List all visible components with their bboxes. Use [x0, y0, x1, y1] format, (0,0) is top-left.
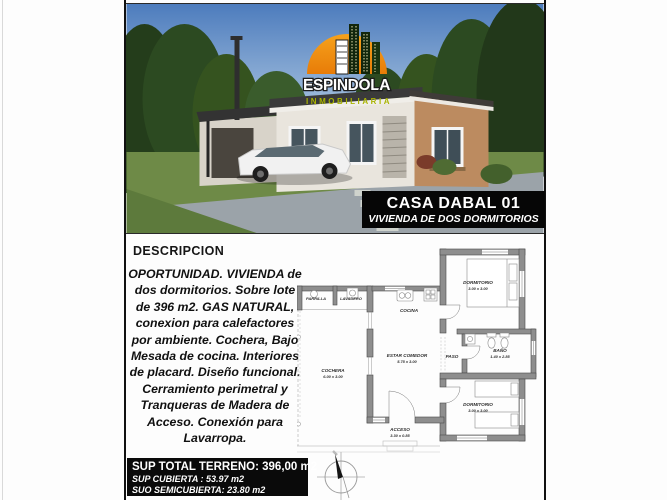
room-label-dormitorio1: DORMITORIO	[463, 280, 493, 285]
floor-plan-drawing: PARRILLA LAVADERO COCINA DORMITORIO 3.00…	[297, 241, 549, 459]
slat-panel	[383, 116, 407, 178]
flyer-page: ESPINDOLA INMOBILIARIA CASA DABAL 01 VIV…	[0, 0, 667, 500]
title-banner: CASA DABAL 01 VIVIENDA DE DOS DORMITORIO…	[362, 191, 545, 228]
front-window-2	[347, 121, 377, 165]
property-title: CASA DABAL 01	[362, 195, 545, 213]
north-arrow	[311, 446, 371, 500]
green-bush	[433, 159, 457, 175]
kitchen-sink-icon	[397, 290, 413, 301]
logo-name-text: ESPINDOLA	[303, 77, 391, 94]
room-label-parrilla: PARRILLA	[306, 296, 326, 301]
logo-buildings-icon	[336, 24, 380, 74]
room-label-cochera: COCHERA	[321, 368, 344, 373]
summary-semicubierta: SUO SEMICUBIERTA: 23.80 m2	[132, 485, 303, 496]
single-bed-icon	[475, 381, 519, 397]
stove-icon	[424, 288, 437, 301]
bidet-icon	[500, 333, 509, 348]
room-dims-cochera: 6.00 x 3.00	[323, 374, 343, 379]
summary-terreno: SUP TOTAL TERRENO: 396,00 m2	[132, 460, 303, 474]
description-heading: DESCRIPCION	[133, 244, 224, 258]
logo-tagline-text: INMOBILIARIA	[306, 97, 392, 106]
room-label-acceso: ACCESO	[389, 427, 410, 432]
surface-summary-box: SUP TOTAL TERRENO: 396,00 m2 SUP CUBIERT…	[127, 458, 308, 496]
toilet-icon	[487, 333, 496, 348]
floor-plan: PARRILLA LAVADERO COCINA DORMITORIO 3.00…	[297, 241, 549, 459]
room-dims-dormitorio2: 3.00 x 3.00	[468, 408, 488, 413]
room-dims-bano: 1.40 x 2.85	[490, 354, 510, 359]
room-label-lavadero: LAVADERO	[340, 296, 363, 301]
room-label-estar: ESTAR COMEDOR	[387, 353, 428, 358]
room-dims-estar: 5.75 x 3.00	[397, 359, 417, 364]
chimney-pipe	[235, 40, 240, 120]
room-dims-dormitorio1: 3.00 x 3.00	[468, 286, 488, 291]
room-dims-acceso: 3.30 x 0.85	[390, 433, 410, 438]
north-arrow-icon	[311, 446, 371, 500]
room-label-dormitorio2: DORMITORIO	[463, 402, 493, 407]
room-label-bano: BAÑO	[493, 347, 507, 353]
property-subtitle: VIVIENDA DE DOS DORMITORIOS	[362, 213, 545, 225]
single-bed-icon	[475, 412, 519, 428]
car	[237, 144, 353, 185]
page-left-edge	[2, 0, 3, 500]
summary-cubierta: SUP CUBIERTA : 53.97 m2	[132, 474, 303, 485]
agency-logo-art: ESPINDOLA INMOBILIARIA	[300, 12, 394, 112]
agency-logo: ESPINDOLA INMOBILIARIA	[300, 12, 394, 112]
bath-sink-icon	[465, 334, 475, 344]
room-label-paso: PASO	[446, 354, 459, 359]
description-body: OPORTUNIDAD. VIVIENDA de dos dormitorios…	[128, 266, 302, 446]
room-label-cocina: COCINA	[400, 308, 418, 313]
